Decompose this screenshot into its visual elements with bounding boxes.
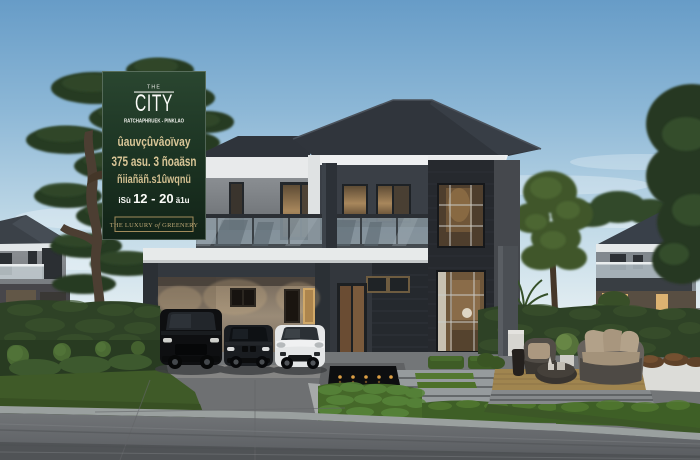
svg-text:THE LUXURY of GREENERY: THE LUXURY of GREENERY xyxy=(110,222,199,229)
svg-text:375 asu. 3 ñoaäsn: 375 asu. 3 ñoaäsn xyxy=(112,153,197,169)
svg-text:RATCHAPHRUEK - PINKLAO: RATCHAPHRUEK - PINKLAO xyxy=(124,119,185,125)
svg-text:CITY: CITY xyxy=(135,90,173,117)
svg-text:ûauvçûvâoïvay: ûauvçûvâoïvay xyxy=(118,134,192,149)
svg-text:ñiiañäñ.s1ûwqnü: ñiiañäñ.s1ûwqnü xyxy=(117,174,191,186)
